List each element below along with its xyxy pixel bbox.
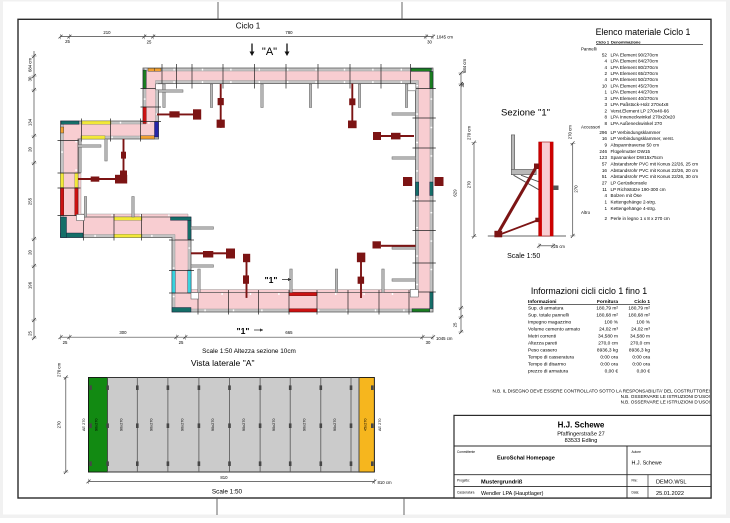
svg-text:25: 25 [179,340,184,345]
svg-text:DEMO.WSL: DEMO.WSL [656,479,686,485]
svg-text:N.B. OSSERVARE LE ISTRUZIONI D: N.B. OSSERVARE LE ISTRUZIONI D’USO! [621,400,710,405]
svg-text:0:00 ora: 0:00 ora [632,355,650,361]
svg-text:Abstandsrohr PVC mit Konus 22/: Abstandsrohr PVC mit Konus 22/26, 30 cm [611,174,699,179]
svg-text:16: 16 [602,136,608,141]
svg-text:LP Richtstütze 190-300 cm: LP Richtstütze 190-300 cm [611,187,666,192]
svg-text:Flügelmutter DW15: Flügelmutter DW15 [611,149,651,154]
svg-text:LPA Element 40/270cm: LPA Element 40/270cm [611,96,659,101]
svg-text:Tempo di casseratura: Tempo di casseratura [528,355,574,361]
svg-text:"1": "1" [265,275,278,285]
svg-text:100 %: 100 % [604,320,618,326]
svg-text:0:00 ora: 0:00 ora [600,355,618,361]
svg-text:180,79 m²: 180,79 m² [596,306,618,312]
svg-text:Tempo di disarmo: Tempo di disarmo [528,362,566,368]
svg-text:20: 20 [28,147,33,152]
svg-text:25: 25 [63,340,68,345]
svg-text:24,02 m³: 24,02 m³ [631,327,650,333]
svg-text:25 cm: 25 cm [554,244,566,249]
svg-text:Altezza pareti: Altezza pareti [528,341,557,347]
svg-text:196: 196 [28,281,33,289]
svg-text:255: 255 [28,197,33,205]
svg-text:25: 25 [65,39,70,44]
svg-text:Verst.Element LP 270x40-66: Verst.Element LP 270x40-66 [611,108,670,113]
svg-text:2: 2 [604,108,607,113]
svg-text:90x270: 90x270 [94,418,99,432]
svg-text:270,0 cm: 270,0 cm [598,341,618,347]
svg-text:296: 296 [599,130,607,135]
svg-text:N.B. IL DISEGNO DEVE ESSERE CO: N.B. IL DISEGNO DEVE ESSERE CONTROLLATO … [493,389,711,394]
svg-text:Perle in legno 1 x 8 x 270 cm: Perle in legno 1 x 8 x 270 cm [611,216,670,221]
svg-text:90x270: 90x270 [119,418,124,432]
svg-text:Pfaffingerstraße 27: Pfaffingerstraße 27 [557,431,604,437]
svg-text:180,68 m²: 180,68 m² [596,313,618,319]
svg-text:83533 Edling: 83533 Edling [565,438,598,444]
svg-text:246: 246 [599,149,607,154]
svg-text:2: 2 [604,71,607,76]
svg-text:Mustergrundriß: Mustergrundriß [481,479,523,485]
svg-text:25: 25 [147,40,152,45]
svg-text:0:00 ora: 0:00 ora [600,362,618,368]
svg-text:30: 30 [427,40,432,45]
svg-text:1045 cm: 1045 cm [437,34,454,39]
svg-text:180,79 m²: 180,79 m² [628,306,650,312]
svg-text:270: 270 [467,181,472,189]
svg-text:24,02 m³: 24,02 m³ [599,327,618,333]
svg-text:LP Gerüstkonsole: LP Gerüstkonsole [611,180,648,185]
svg-text:Abstandsrohr PVC mit Konus 22/: Abstandsrohr PVC mit Konus 22/26, 20 cm [611,168,699,173]
svg-text:90x270: 90x270 [241,418,246,432]
svg-text:Elenco materiale Ciclo 1: Elenco materiale Ciclo 1 [596,27,691,37]
svg-text:3: 3 [604,102,607,107]
svg-text:180,68 m²: 180,68 m² [628,313,650,319]
svg-text:Spannanker DW15x75cm: Spannanker DW15x75cm [611,155,664,160]
svg-text:270,0 cm: 270,0 cm [630,341,650,347]
svg-text:1: 1 [604,206,607,211]
svg-text:30: 30 [28,76,33,81]
svg-text:0,00 €: 0,00 € [605,369,619,375]
svg-text:270: 270 [57,421,62,429]
svg-text:Sup. totale pannelli: Sup. totale pannelli [528,313,569,319]
svg-text:1: 1 [604,90,607,95]
svg-text:Abspanntraverse 50 cm: Abspanntraverse 50 cm [611,142,660,147]
svg-text:prezzo di armatura: prezzo di armatura [528,369,568,375]
svg-text:Sezione "1": Sezione "1" [501,108,550,119]
svg-text:Impegno magazzino: Impegno magazzino [528,320,572,326]
svg-text:Altro: Altro [581,210,591,215]
svg-text:810 cm: 810 cm [378,480,393,485]
svg-text:Ciclo 1: Ciclo 1 [236,22,261,31]
svg-text:Bolzen mit Öse: Bolzen mit Öse [611,192,643,198]
svg-text:N.B. OSSERVARE LE ISTRUZIONI D: N.B. OSSERVARE LE ISTRUZIONI D’USO! [621,394,710,399]
svg-text:52: 52 [602,52,608,57]
svg-text:665: 665 [285,330,293,335]
svg-text:270 cm: 270 cm [57,362,62,377]
svg-text:8: 8 [604,121,607,126]
svg-text:270 cm: 270 cm [467,126,472,141]
svg-text:EuroSchal Homepage: EuroSchal Homepage [497,456,555,462]
svg-text:Vista laterale "A": Vista laterale "A" [191,358,255,368]
svg-text:4: 4 [604,193,607,198]
svg-text:810: 810 [220,475,228,480]
svg-text:Pannelli: Pannelli [581,46,597,51]
svg-text:57: 57 [602,161,608,166]
svg-text:0,00 €: 0,00 € [637,369,651,375]
svg-text:629: 629 [453,189,458,197]
svg-text:AE 270: AE 270 [377,418,382,432]
svg-text:LPA Außeneckwinkel 270: LPA Außeneckwinkel 270 [611,121,663,126]
svg-text:LPA Element 80/270cm: LPA Element 80/270cm [611,65,659,70]
svg-text:Abstandsrohr PVC mit Konus 22/: Abstandsrohr PVC mit Konus 22/26, 25 cm [611,161,699,166]
svg-text:LPA Paßstück-Holz 270x4x8: LPA Paßstück-Holz 270x4x8 [611,102,669,107]
svg-text:34,580 m: 34,580 m [630,334,650,340]
svg-text:LPA Element 90/270cm: LPA Element 90/270cm [611,52,659,57]
svg-text:90x270: 90x270 [149,418,154,432]
svg-text:Ciclo 1: Ciclo 1 [596,39,610,44]
svg-text:LPA Element 44/270cm: LPA Element 44/270cm [611,90,659,95]
svg-text:8936,3 kg: 8936,3 kg [629,348,650,354]
svg-text:4: 4 [604,65,607,70]
svg-text:20: 20 [28,250,33,255]
svg-text:LP Verbindungsklammer: LP Verbindungsklammer [611,130,661,135]
svg-text:34,580 m: 34,580 m [598,334,618,340]
svg-text:Accessori: Accessori [581,124,600,129]
svg-text:LP Verbindungsklammer, verst.: LP Verbindungsklammer, verst. [611,136,675,141]
svg-text:LPA Inneneckwinkel 270x20x20: LPA Inneneckwinkel 270x20x20 [611,115,676,120]
svg-text:30: 30 [460,82,465,87]
svg-text:30: 30 [426,340,431,345]
svg-text:Progetto:: Progetto: [457,479,470,483]
svg-text:8936,3 kg: 8936,3 kg [597,348,618,354]
svg-text:300: 300 [119,330,127,335]
svg-text:90x270: 90x270 [271,418,276,432]
svg-text:134: 134 [28,118,33,126]
svg-text:H.J. Schewe: H.J. Schewe [632,460,662,466]
svg-text:9: 9 [604,142,607,147]
svg-text:51: 51 [602,174,608,179]
svg-text:270 cm: 270 cm [567,125,572,140]
svg-text:"A": "A" [262,46,277,58]
svg-text:Committente: Committente [457,450,475,454]
svg-text:3: 3 [604,96,607,101]
svg-text:90x270: 90x270 [179,418,184,432]
svg-text:8: 8 [604,115,607,120]
svg-text:1: 1 [604,199,607,204]
svg-text:210: 210 [103,30,111,35]
svg-text:25: 25 [453,322,458,327]
svg-text:Kettengehänge 2-strg.: Kettengehänge 2-strg. [611,199,656,204]
svg-text:LPA Element 65/270cm: LPA Element 65/270cm [611,71,659,76]
svg-text:Data:: Data: [632,491,640,495]
svg-text:Metri correnti: Metri correnti [528,334,556,340]
svg-text:100 %: 100 % [636,320,650,326]
svg-text:684 cm: 684 cm [462,59,467,74]
svg-text:27: 27 [602,180,608,185]
svg-text:123: 123 [599,155,607,160]
svg-text:AE 270: AE 270 [81,418,86,432]
svg-text:90x270: 90x270 [332,418,337,432]
svg-text:Sup. di armatura: Sup. di armatura [528,306,564,312]
svg-text:Informazioni cicli ciclo 1 fi: Informazioni cicli ciclo 1 fino 1 [531,286,647,296]
svg-text:4: 4 [604,59,607,64]
svg-text:Autore: Autore [632,450,642,454]
svg-text:0:00 ora: 0:00 ora [632,362,650,368]
svg-text:1045 cm: 1045 cm [436,336,453,341]
svg-text:Scale 1:50: Scale 1:50 [507,253,540,260]
svg-text:4: 4 [604,77,607,82]
svg-text:780: 780 [285,30,293,35]
svg-text:90x270: 90x270 [302,418,307,432]
svg-text:Volume cemento armato: Volume cemento armato [528,327,580,333]
svg-text:LPA Element 50/270cm: LPA Element 50/270cm [611,77,659,82]
svg-text:25: 25 [28,331,33,336]
svg-text:2: 2 [604,216,607,221]
svg-text:Wendler LPA (Hauptlager): Wendler LPA (Hauptlager) [481,491,544,497]
svg-text:Denominazione: Denominazione [611,39,641,44]
svg-text:Peso cassero: Peso cassero [528,348,557,354]
svg-text:90x270: 90x270 [210,418,215,432]
svg-text:H.J. Schewe: H.J. Schewe [558,421,605,430]
svg-text:Kettengehänge 4-strg.: Kettengehänge 4-strg. [611,206,656,211]
svg-text:File:: File: [632,479,638,483]
svg-text:45x270: 45x270 [363,418,368,432]
svg-text:LPA Element 45/270cm: LPA Element 45/270cm [611,83,659,88]
svg-text:25.01.2022: 25.01.2022 [656,491,684,497]
svg-text:684 cm: 684 cm [28,58,33,73]
svg-text:10: 10 [602,83,608,88]
svg-text:"1": "1" [237,326,250,336]
svg-text:Casseratura: Casseratura [457,491,475,495]
svg-text:LPA Element 84/270cm: LPA Element 84/270cm [611,59,659,64]
svg-text:270: 270 [573,185,578,193]
svg-text:16: 16 [602,168,608,173]
svg-text:11: 11 [602,187,607,192]
svg-text:Scale 1:50: Scale 1:50 [212,489,243,496]
svg-text:Scale 1:50 Altezza sezione 1: Scale 1:50 Altezza sezione 10cm [202,348,296,355]
